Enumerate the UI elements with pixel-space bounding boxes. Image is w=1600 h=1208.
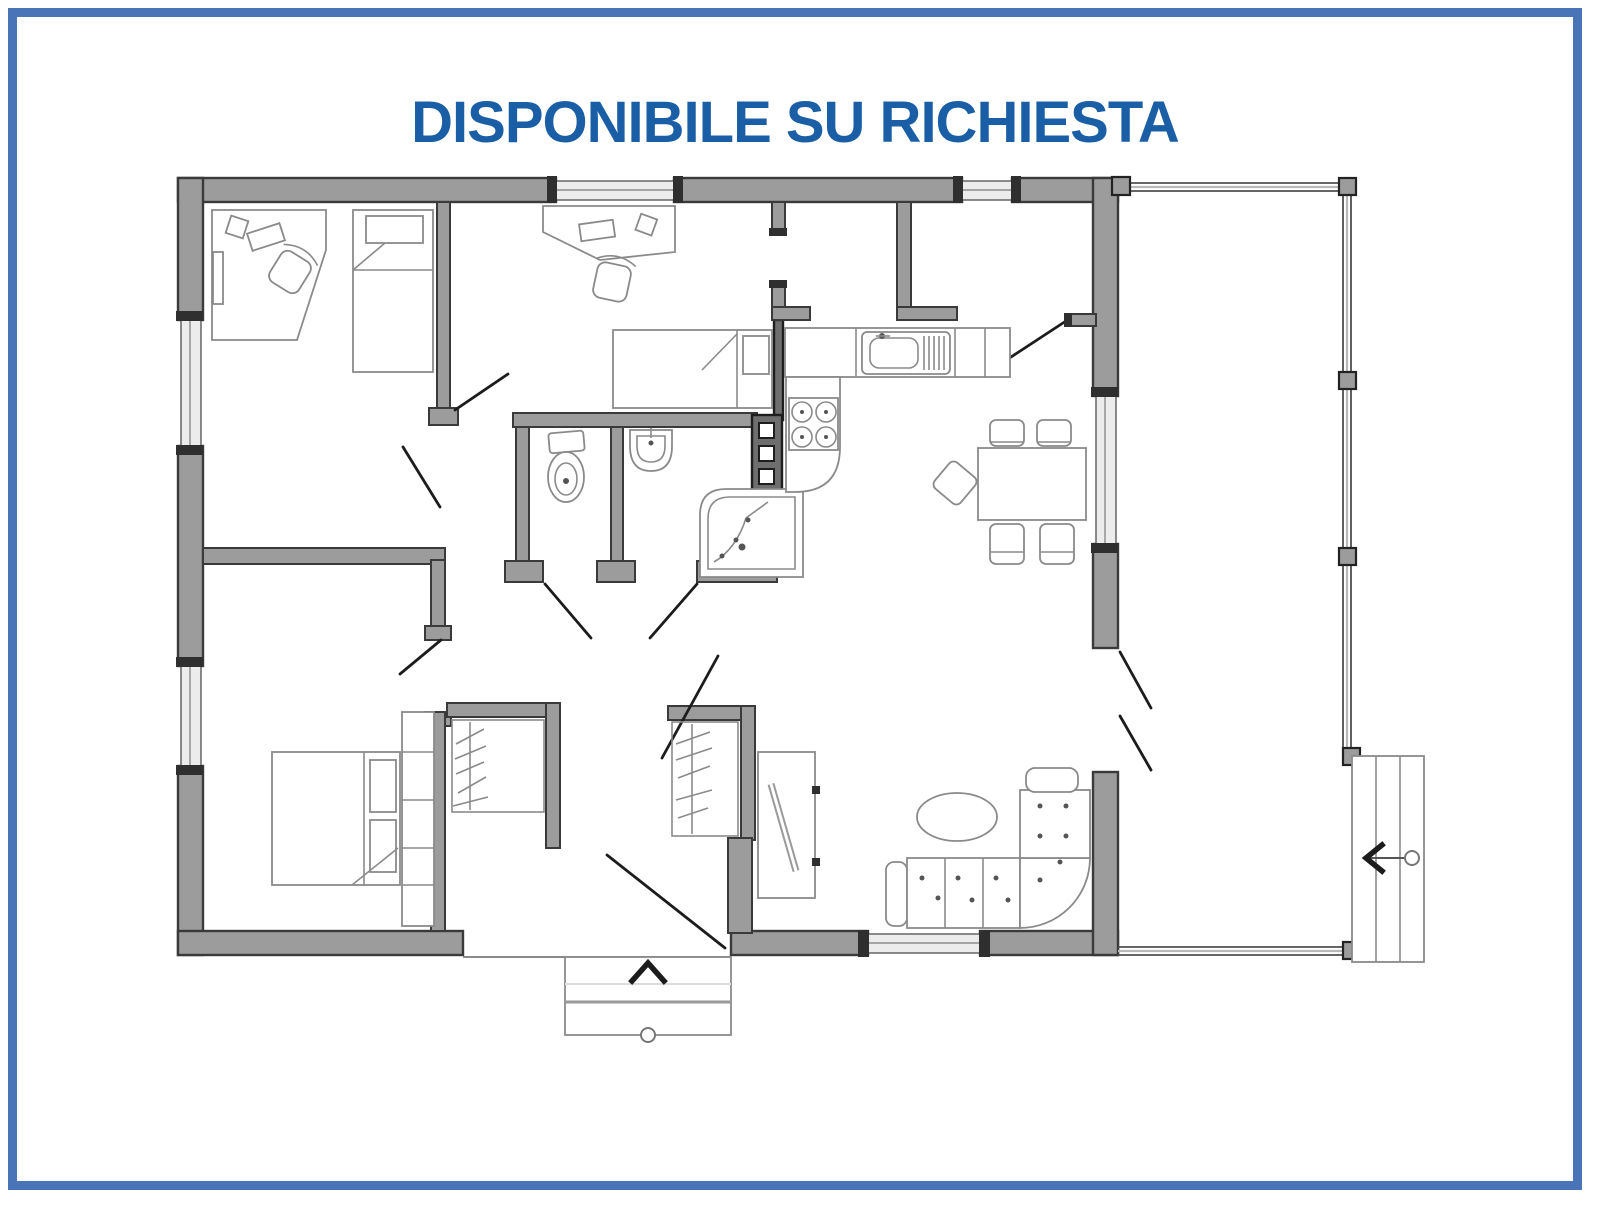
door-dining-corridor [1008,321,1066,359]
office-chair [589,252,637,303]
bedroom-bottom-left [272,712,434,926]
kitchen [785,328,1010,492]
window-top-1 [547,176,683,203]
dining-table [978,448,1086,520]
step-marker [1405,851,1419,865]
window-right [1091,387,1118,553]
entrance-steps [463,957,731,1042]
door-terrace-leaf-1 [1120,652,1151,708]
tv-unit [758,752,820,898]
bedroom-top-middle [543,206,772,408]
door-bedroom-bottom-left [400,640,441,674]
door-bedroom-top-middle [455,374,508,410]
window-bottom-sliding [858,930,990,957]
double-bed [272,752,400,885]
corner-sofa [886,768,1090,928]
terrace-steps [1352,756,1424,962]
door-entrance [607,855,725,948]
railing-post [1112,177,1130,195]
door-bedroom-top-left [403,447,440,507]
hangers [676,732,712,818]
window-left-1 [176,311,203,455]
chair [990,524,1024,564]
window-left-2 [176,657,203,775]
step-marker [641,1028,655,1042]
bedroom-office-top-left [212,210,433,372]
headboard-cabinets [402,712,434,926]
railing-post [1339,178,1356,195]
door-wc [545,584,591,638]
walk-in-closet-left [452,720,544,812]
floor-plan [0,0,1600,1208]
service-column [752,415,782,492]
window-top-2 [953,176,1021,203]
washbasin [630,428,672,471]
single-bed [353,210,433,372]
chair [1040,524,1074,564]
kitchen-sink [862,332,950,374]
oval-coffee-table [917,793,997,841]
corner-shower [700,489,803,577]
wc [548,430,585,502]
door-terrace-leaf-2 [1120,716,1151,770]
door-bathroom [650,584,697,638]
monitor [579,220,615,242]
door-jamb [1064,313,1072,327]
single-bed [613,330,772,408]
chair [931,459,979,507]
living-room [758,752,1090,928]
railing-post [1339,548,1356,565]
walk-in-closet-right [672,722,738,836]
railing-post [1339,372,1356,389]
pc-tower [213,252,223,304]
terrace [1112,177,1360,959]
dining-area [931,420,1086,564]
toilet [548,430,585,502]
cooktop-4-burners [789,398,838,450]
